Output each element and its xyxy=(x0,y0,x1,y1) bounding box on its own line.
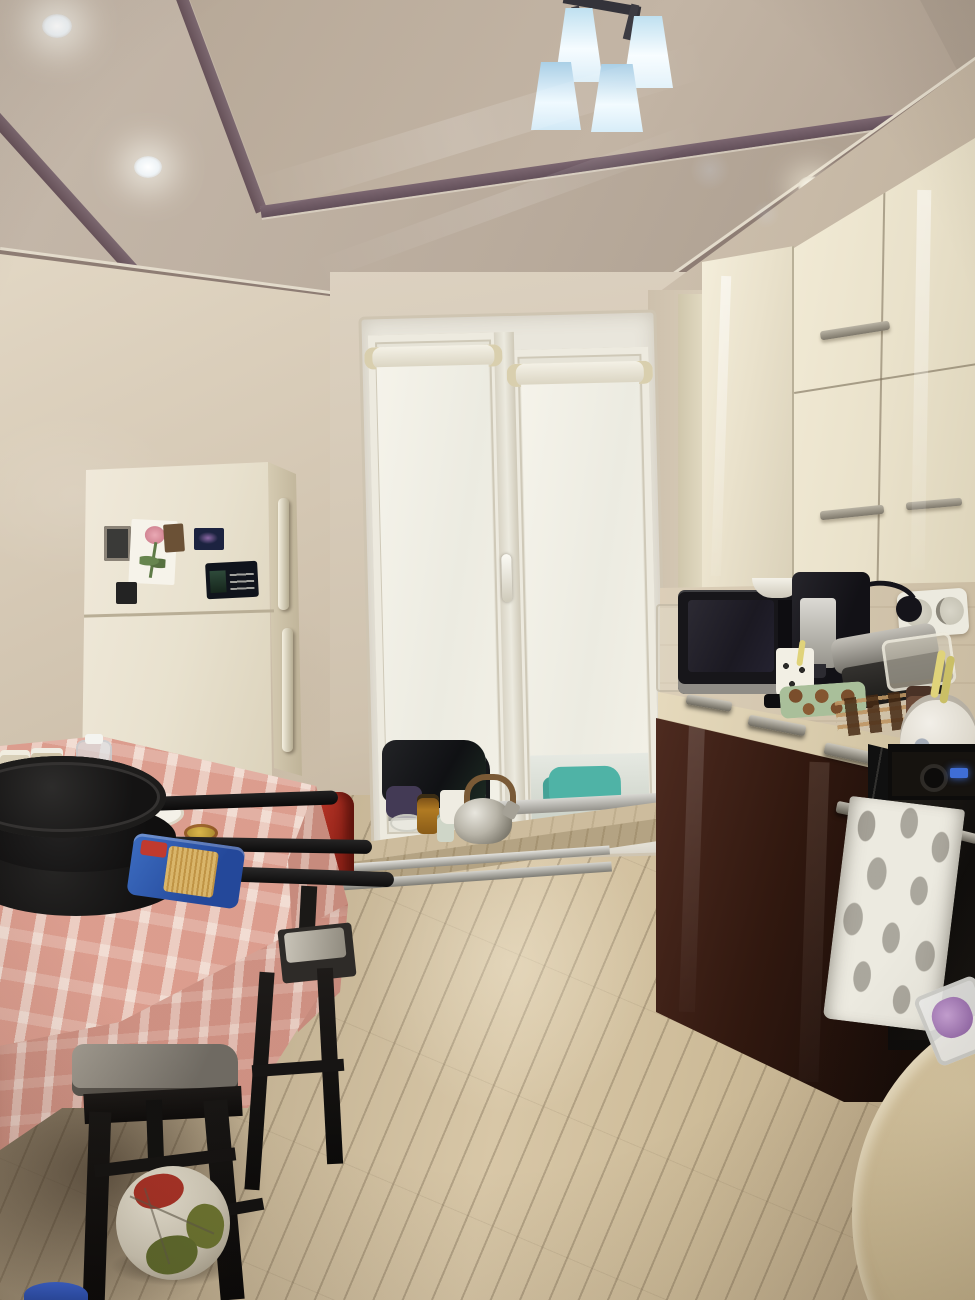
door-handle xyxy=(501,554,512,602)
fridge-front xyxy=(82,462,272,776)
oven-knob xyxy=(920,764,948,792)
cabinet-gloss-reflection xyxy=(711,276,731,576)
football-green-patch xyxy=(144,1233,201,1278)
cabinet-gloss-reflection xyxy=(911,190,932,570)
spotlight-icon xyxy=(134,156,162,178)
cabinet-gloss-reflection xyxy=(679,722,705,1012)
cabinet-handle-bar xyxy=(820,505,885,521)
flower-leaves xyxy=(139,553,166,568)
lens-flare-ghost xyxy=(690,150,730,190)
fridge-magnet-galaxy xyxy=(194,528,224,550)
club-card-text-lines xyxy=(229,569,254,590)
fridge-magnet-brown xyxy=(163,523,185,552)
foil-tray xyxy=(284,927,347,963)
pack-red-label xyxy=(140,840,168,858)
cabinet-door-seam xyxy=(794,363,975,394)
cabinet-door-seam xyxy=(876,170,886,600)
upper-cabinet-corner-filler xyxy=(678,294,704,590)
refrigerator xyxy=(82,452,318,776)
roller-blind-right xyxy=(521,382,648,757)
kettle-body xyxy=(454,798,512,844)
bottle-cap xyxy=(85,734,103,744)
spotlight-icon xyxy=(42,14,72,38)
glass-dish xyxy=(881,631,958,692)
fridge-club-card xyxy=(205,561,259,600)
roller-blind-left xyxy=(377,365,500,804)
oven-display xyxy=(950,768,968,778)
club-card-image xyxy=(210,570,227,593)
fridge-handle-bottom xyxy=(282,628,293,752)
kettle xyxy=(454,780,514,844)
honey-jar xyxy=(417,794,439,834)
oven-control-panel xyxy=(892,752,975,796)
football xyxy=(116,1166,230,1280)
fridge-magnet-black-square xyxy=(116,582,137,604)
package-contents xyxy=(926,991,975,1043)
kitchen-photo: 01 xyxy=(0,0,975,1300)
cabinet-handle-bar xyxy=(820,321,891,341)
fridge-handle-top xyxy=(278,498,289,610)
upper-cabinet-corner-door xyxy=(702,246,794,602)
cabinet-gloss-reflection xyxy=(798,762,829,1083)
spaghetti-window xyxy=(163,845,219,898)
microwave-window xyxy=(688,600,774,672)
outlet-socket xyxy=(935,596,965,626)
fridge-magnet-cat-photo xyxy=(104,526,131,561)
lens-flare-ghost xyxy=(752,200,780,228)
